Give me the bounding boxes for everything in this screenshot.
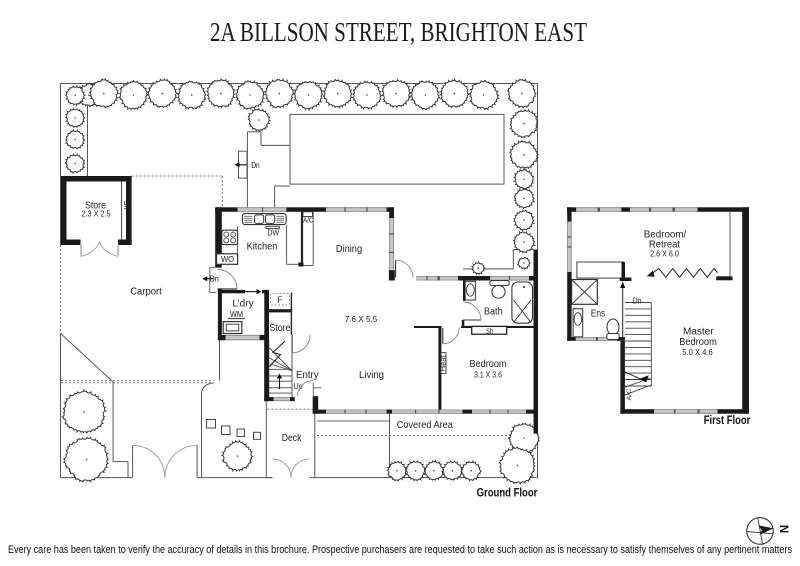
svg-text:DW: DW xyxy=(267,229,279,238)
svg-text:Ground Floor: Ground Floor xyxy=(477,487,538,499)
svg-text:Master: Master xyxy=(683,326,714,337)
svg-text:2A BILLSON STREET, BRIGHTON EA: 2A BILLSON STREET, BRIGHTON EAST xyxy=(210,16,587,47)
svg-text:Dn: Dn xyxy=(210,275,219,284)
svg-text:Dining: Dining xyxy=(336,244,362,255)
svg-text:Dn: Dn xyxy=(633,297,642,306)
svg-text:Carport: Carport xyxy=(130,285,162,297)
svg-text:Sh: Sh xyxy=(486,326,493,335)
svg-text:2.3 X 2.5: 2.3 X 2.5 xyxy=(82,210,111,219)
svg-text:Store: Store xyxy=(270,323,291,334)
svg-text:2.6 X 6.0: 2.6 X 6.0 xyxy=(650,249,679,258)
svg-text:Every care has been taken to v: Every care has been taken to verify the … xyxy=(8,544,793,556)
svg-text:Bedroom: Bedroom xyxy=(679,337,717,348)
svg-text:7.6 X 5.5: 7.6 X 5.5 xyxy=(345,315,378,324)
svg-text:F: F xyxy=(277,296,282,305)
svg-text:Kitchen: Kitchen xyxy=(247,241,278,252)
svg-text:5.0 X 4.6: 5.0 X 4.6 xyxy=(682,348,713,357)
svg-text:Dn: Dn xyxy=(251,161,260,170)
svg-text:WO: WO xyxy=(221,255,234,264)
svg-text:A/C: A/C xyxy=(626,388,633,400)
svg-text:Entry: Entry xyxy=(296,370,319,381)
svg-text:Deck: Deck xyxy=(282,433,302,444)
svg-text:Bedroom: Bedroom xyxy=(470,359,507,370)
svg-text:WM: WM xyxy=(230,310,243,319)
svg-text:Covered Area: Covered Area xyxy=(397,420,454,431)
svg-text:Living: Living xyxy=(359,370,384,381)
svg-text:A/C: A/C xyxy=(303,216,314,225)
svg-text:L’dry: L’dry xyxy=(232,299,254,310)
svg-text:Bath: Bath xyxy=(484,307,503,318)
svg-text:3.1 X 3.6: 3.1 X 3.6 xyxy=(474,370,502,379)
svg-text:First Floor: First Floor xyxy=(704,415,751,427)
svg-text:N: N xyxy=(777,525,789,533)
svg-text:Heat: Heat xyxy=(440,356,447,372)
svg-text:Ens: Ens xyxy=(591,309,606,320)
svg-text:Sh: Sh xyxy=(122,200,131,209)
